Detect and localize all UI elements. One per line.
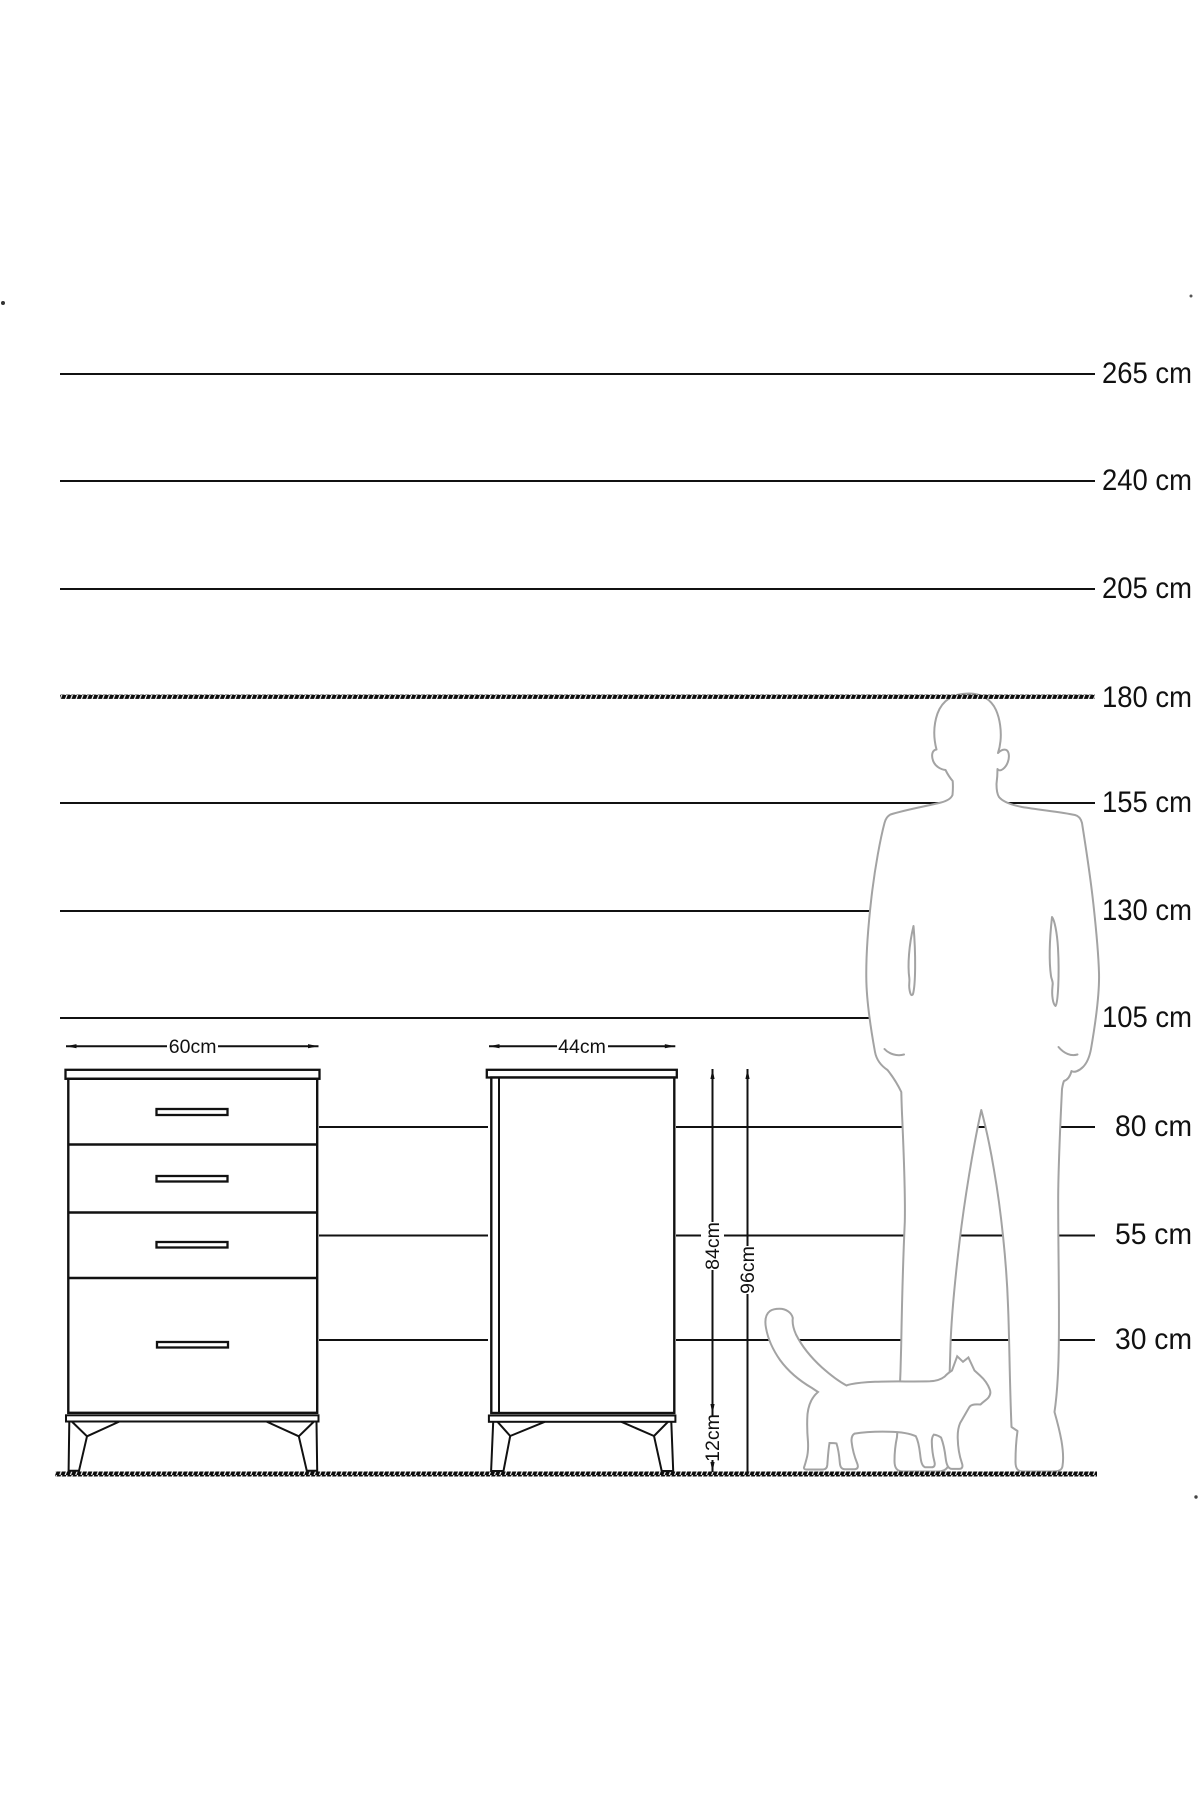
svg-text:60cm: 60cm: [169, 1036, 217, 1058]
svg-text:30 cm: 30 cm: [1115, 1323, 1192, 1356]
svg-text:265 cm: 265 cm: [1102, 357, 1192, 390]
svg-text:55 cm: 55 cm: [1115, 1218, 1192, 1251]
svg-text:180 cm: 180 cm: [1102, 681, 1192, 714]
svg-text:84cm: 84cm: [702, 1222, 724, 1270]
svg-text:240 cm: 240 cm: [1102, 464, 1192, 497]
svg-text:155 cm: 155 cm: [1102, 786, 1192, 819]
svg-text:130 cm: 130 cm: [1102, 894, 1192, 927]
svg-text:105 cm: 105 cm: [1102, 1001, 1192, 1034]
svg-text:96cm: 96cm: [737, 1246, 759, 1294]
svg-text:44cm: 44cm: [558, 1036, 606, 1058]
svg-text:80 cm: 80 cm: [1115, 1110, 1192, 1143]
svg-text:205 cm: 205 cm: [1102, 572, 1192, 605]
svg-text:12cm: 12cm: [702, 1414, 724, 1462]
